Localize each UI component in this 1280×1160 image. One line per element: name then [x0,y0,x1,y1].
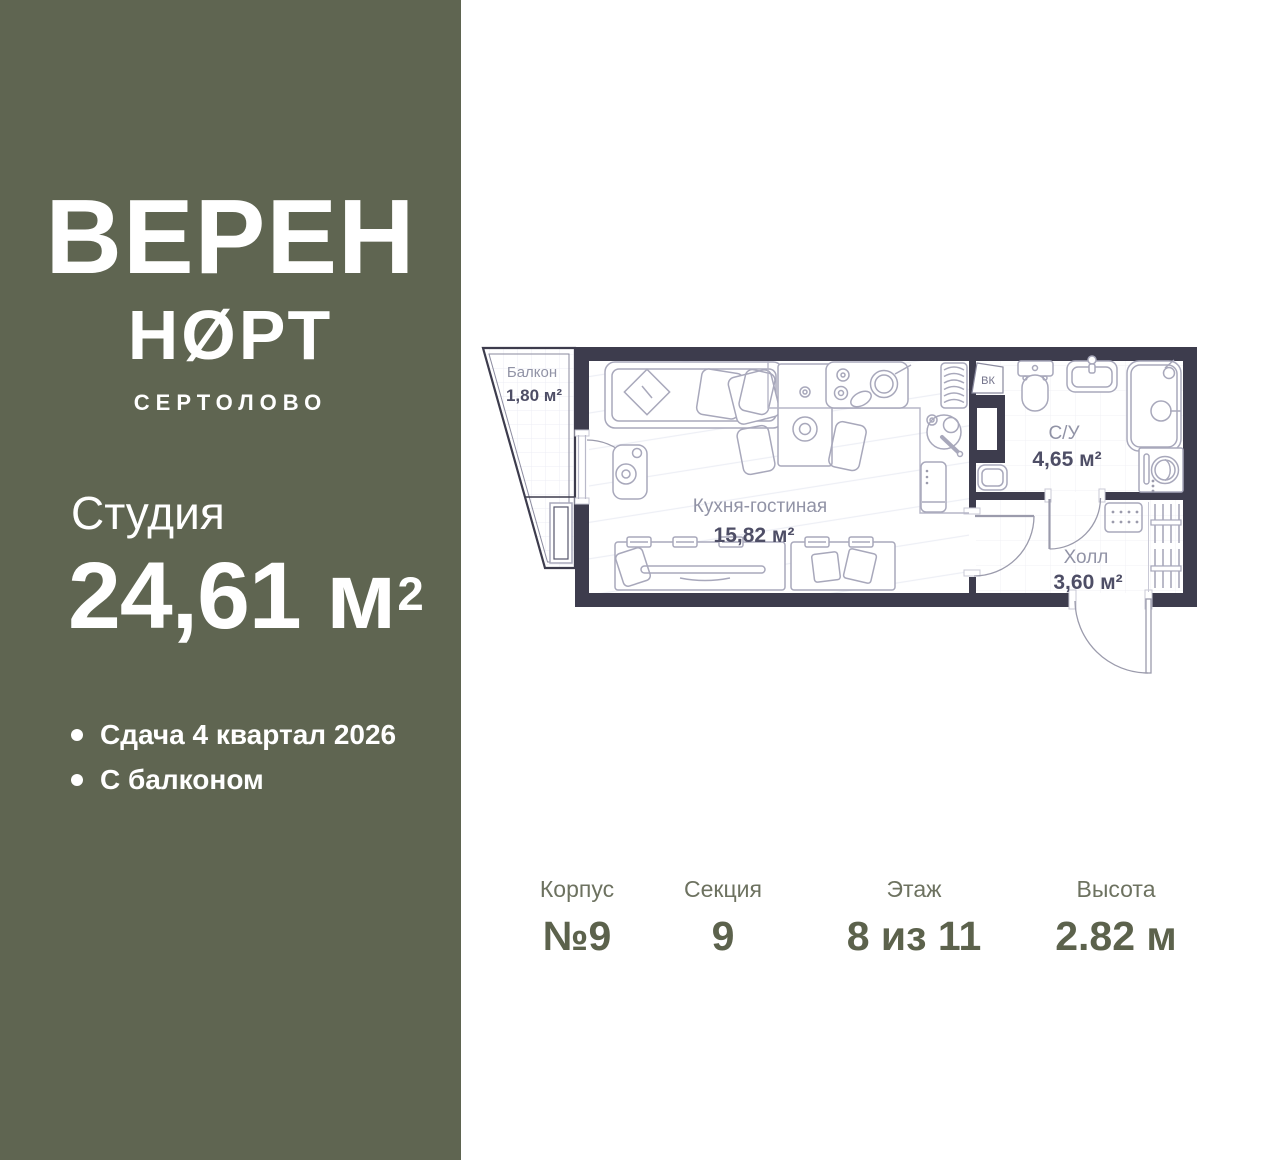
sofa [605,362,783,428]
feature-item-delivery: Сдача 4 квартал 2026 [71,712,396,757]
room-area-hall: 3,60 м² [1053,571,1122,594]
listing-card: { "sidebar": { "logo_line1": "ВЕРЕН", "l… [0,0,1280,1160]
towel-radiator [978,465,1007,490]
brand-name-line1: ВЕРЕН [0,184,461,290]
tv-stand [791,537,895,590]
detail-value: 8 из 11 [847,913,982,959]
brand-name-line2: НØРТ [0,300,461,370]
feature-label: Сдача 4 квартал 2026 [100,719,396,751]
room-area-balcony: 1,80 м² [506,386,562,405]
brand-city: СЕРТОЛОВО [0,392,461,414]
detail-label: Высота [1055,876,1177,902]
vent-shaft: ВК [972,363,1003,393]
washing-machine [1139,448,1183,492]
unit-area-value: 24,61 [68,543,301,649]
detail-value: 2.82 м [1055,913,1177,959]
detail-label: Корпус [540,876,614,902]
shower [1127,360,1181,451]
room-name-balcony: Балкон [507,364,557,381]
detail-height: Высота 2.82 м [1055,876,1177,959]
detail-label: Секция [684,876,762,902]
detail-value: 9 [684,913,762,959]
balcony [483,348,575,568]
bullet-dot-icon [71,774,83,786]
unit-area: 24,61 м2 [68,542,423,651]
room-name-hall: Холл [1064,547,1109,568]
room-area-bathroom: 4,65 м² [1032,448,1101,471]
stove [826,362,911,410]
unit-area-unit: м [326,543,395,649]
shaft-label: ВК [981,375,995,387]
fridge [921,462,946,512]
dish-rack [941,363,967,408]
ac-unit [550,503,572,563]
info-sidebar: ВЕРЕН НØРТ СЕРТОЛОВО Студия 24,61 м2 Сда… [0,0,461,1160]
detail-label: Этаж [847,876,982,902]
bullet-dot-icon [71,729,83,741]
entrance-door [1075,599,1151,673]
unit-area-sup: 2 [397,568,422,621]
side-table [613,445,647,499]
room-name-kitchen: Кухня-гостиная [693,496,827,517]
detail-building: Корпус №9 [540,876,614,959]
brand-logo: ВЕРЕН НØРТ СЕРТОЛОВО [0,184,461,414]
detail-section: Секция 9 [684,876,762,959]
unit-type: Студия [71,486,225,540]
feature-item-balcony: С балконом [71,757,396,802]
room-area-kitchen: 15,82 м² [714,524,795,547]
bathroom-sink [1067,356,1117,392]
detail-value: №9 [540,913,614,959]
floor-plan: ВК [475,340,1205,685]
detail-floor: Этаж 8 из 11 [847,876,982,959]
room-name-bathroom: С/У [1048,423,1080,444]
feature-list: Сдача 4 квартал 2026 С балконом [71,712,396,802]
feature-label: С балконом [100,764,264,796]
